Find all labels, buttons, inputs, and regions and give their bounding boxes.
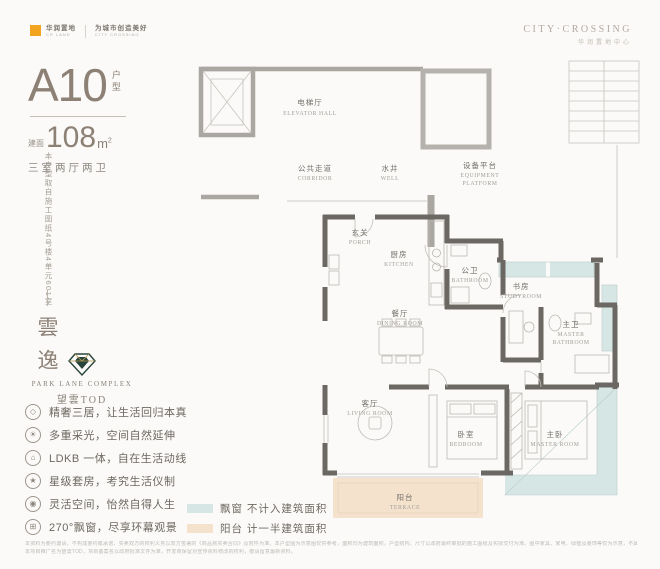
label-dining-en: DINING ROOM xyxy=(377,321,423,327)
label-living-en: LIVING ROOM xyxy=(347,411,392,417)
master-wardrobe xyxy=(511,393,522,469)
feature-item: ◉ 灵活空间，怡然自得人生 xyxy=(25,496,187,512)
park-lane-en: PARK LANE COMPLEX xyxy=(18,380,146,388)
stairs xyxy=(569,61,639,143)
label-master-room-en: MASTER ROOM xyxy=(531,442,580,448)
legend-label: 阳台 计一半建筑面积 xyxy=(220,521,327,536)
source-note-vertical: 本户型取自施工图纸4号楼4单元601室 xyxy=(43,152,54,306)
vertical-divider xyxy=(47,290,48,306)
label-living-cn: 客厅 xyxy=(362,398,379,408)
disclaimer-line-2: 本项目推广名为望雲TOD，项目备案名以政府批准文件为准，开发商保留对宣传资料修改… xyxy=(25,549,637,557)
area-value: 108 xyxy=(46,123,96,153)
floor-plan: 电梯厅 ELEVATOR HALL 公共走道 CORRIDOR 水井 WELL … xyxy=(183,55,643,522)
unit-code: A10 xyxy=(28,62,107,108)
plan-legend: 飘窗 不计入建筑面积 阳台 计一半建筑面积 xyxy=(187,501,327,536)
label-equipment-en2: PLATFORM xyxy=(462,181,497,187)
feature-item: ⊞ 270°飘窗，尽享环幕观景 xyxy=(25,519,187,535)
label-study-en: STUDYROOM xyxy=(500,294,542,300)
label-equipment-cn: 设备平台 xyxy=(463,160,497,170)
label-corridor-en: CORRIDOR xyxy=(298,176,333,182)
feature-item: ⌂ LDKB 一体，自在生活动线 xyxy=(25,450,187,466)
gem-icon xyxy=(68,352,96,376)
bay-window-swatch xyxy=(187,504,213,513)
headline-divider xyxy=(30,116,126,117)
feature-text: 精奢三居，让生活回归本真 xyxy=(49,404,187,420)
public-walls xyxy=(201,69,617,258)
feature-text: 270°飘窗，尽享环幕观景 xyxy=(49,519,177,535)
feature-item: ☀ 多重采光，空间自然延伸 xyxy=(25,427,187,443)
label-master-bath-cn: 主卫 xyxy=(563,319,580,329)
brand-logo-right: CITY·CROSSING 华润置地中心 xyxy=(523,24,632,46)
feature-item: ◇ 精奢三居，让生活回归本真 xyxy=(25,404,187,420)
feature-item: ★ 星级套房，考究生活仪制 xyxy=(25,473,187,489)
study-desk xyxy=(509,311,534,343)
disclaimer: 本资料为要约邀请，不构成要约或承诺，买卖双方的权利义务以双方签署的《商品房买卖合… xyxy=(25,541,637,556)
legend-item-terrace: 阳台 计一半建筑面积 xyxy=(187,521,327,536)
star-feature-icon: ★ xyxy=(25,473,41,489)
feature-text: 多重采光，空间自然延伸 xyxy=(49,427,176,443)
feature-text: LDKB 一体，自在生活动线 xyxy=(49,450,187,466)
brand-divider xyxy=(85,25,86,38)
label-elevator-hall-cn: 电梯厅 xyxy=(297,97,323,107)
city-crossing-subtitle: 华润置地中心 xyxy=(523,37,632,46)
feature-text: 星级套房，考究生活仪制 xyxy=(49,473,176,489)
eye-feature-icon: ◉ xyxy=(25,496,41,512)
label-bedroom-en: BEDROOM xyxy=(449,442,482,448)
area-unit: m2 xyxy=(97,136,112,151)
legend-item-bay-window: 飘窗 不计入建筑面积 xyxy=(187,501,327,516)
window-feature-icon: ⊞ xyxy=(25,519,41,535)
label-master-bath-en1: MASTER xyxy=(557,332,584,338)
label-kitchen-cn: 厨房 xyxy=(391,249,408,259)
label-bathroom-cn: 公卫 xyxy=(462,266,479,275)
legend-label: 飘窗 不计入建筑面积 xyxy=(220,501,327,516)
room-labels: 电梯厅 ELEVATOR HALL 公共走道 CORRIDOR 水井 WELL … xyxy=(283,97,590,511)
porch-cabinet xyxy=(329,255,339,285)
label-study-cn: 书房 xyxy=(513,281,530,291)
label-well-en: WELL xyxy=(381,176,400,182)
disclaimer-line-1: 本资料为要约邀请，不构成要约或承诺，买卖双方的权利义务以双方签署的《商品房买卖合… xyxy=(25,541,637,549)
label-well-cn: 水井 xyxy=(382,163,399,173)
feature-text: 灵活空间，怡然自得人生 xyxy=(49,496,176,512)
brand-partner-sub: CITY CROSSING xyxy=(95,33,148,38)
label-bathroom-en: BATHROOM xyxy=(451,278,488,284)
label-elevator-hall-en: ELEVATOR HALL xyxy=(283,111,337,117)
label-corridor-cn: 公共走道 xyxy=(298,163,332,173)
brand-name-sub: CR LAND xyxy=(46,33,76,38)
label-equipment-en1: EQUIPMENT xyxy=(461,173,500,179)
label-bedroom-cn: 卧室 xyxy=(458,429,475,439)
light-feature-icon: ☀ xyxy=(25,427,41,443)
unit-area: 建面 108 m2 xyxy=(28,123,158,153)
label-terrace-cn: 阳台 xyxy=(397,492,414,502)
tv-cabinet xyxy=(429,395,437,467)
label-porch-en: PORCH xyxy=(349,240,372,246)
brand-logo-mark xyxy=(30,25,41,36)
terrace-swatch xyxy=(187,524,213,533)
label-kitchen-en: KITCHEN xyxy=(384,262,414,268)
home-feature-icon: ⌂ xyxy=(25,450,41,466)
gem-feature-icon: ◇ xyxy=(25,404,41,420)
area-prefix: 建面 xyxy=(28,138,44,149)
unit-code-suffix: 户型 xyxy=(110,70,123,94)
label-master-bath-en2: BATHROOM xyxy=(552,340,589,346)
label-master-room-cn: 主卧 xyxy=(547,429,564,439)
label-dining-cn: 餐厅 xyxy=(392,309,409,318)
label-terrace-en: TERRACE xyxy=(390,505,421,511)
elevator-cross xyxy=(203,71,251,133)
feature-list: ◇ 精奢三居，让生活回归本真 ☀ 多重采光，空间自然延伸 ⌂ LDKB 一体，自… xyxy=(25,404,187,535)
label-porch-cn: 玄关 xyxy=(352,227,369,237)
park-lane-logo: PARK LANE COMPLEX 望雲TOD xyxy=(18,352,146,406)
city-crossing-title: CITY·CROSSING xyxy=(523,24,632,35)
brand-logo-left: 华润置地 CR LAND 为城市创造美好 CITY CROSSING xyxy=(30,25,148,38)
